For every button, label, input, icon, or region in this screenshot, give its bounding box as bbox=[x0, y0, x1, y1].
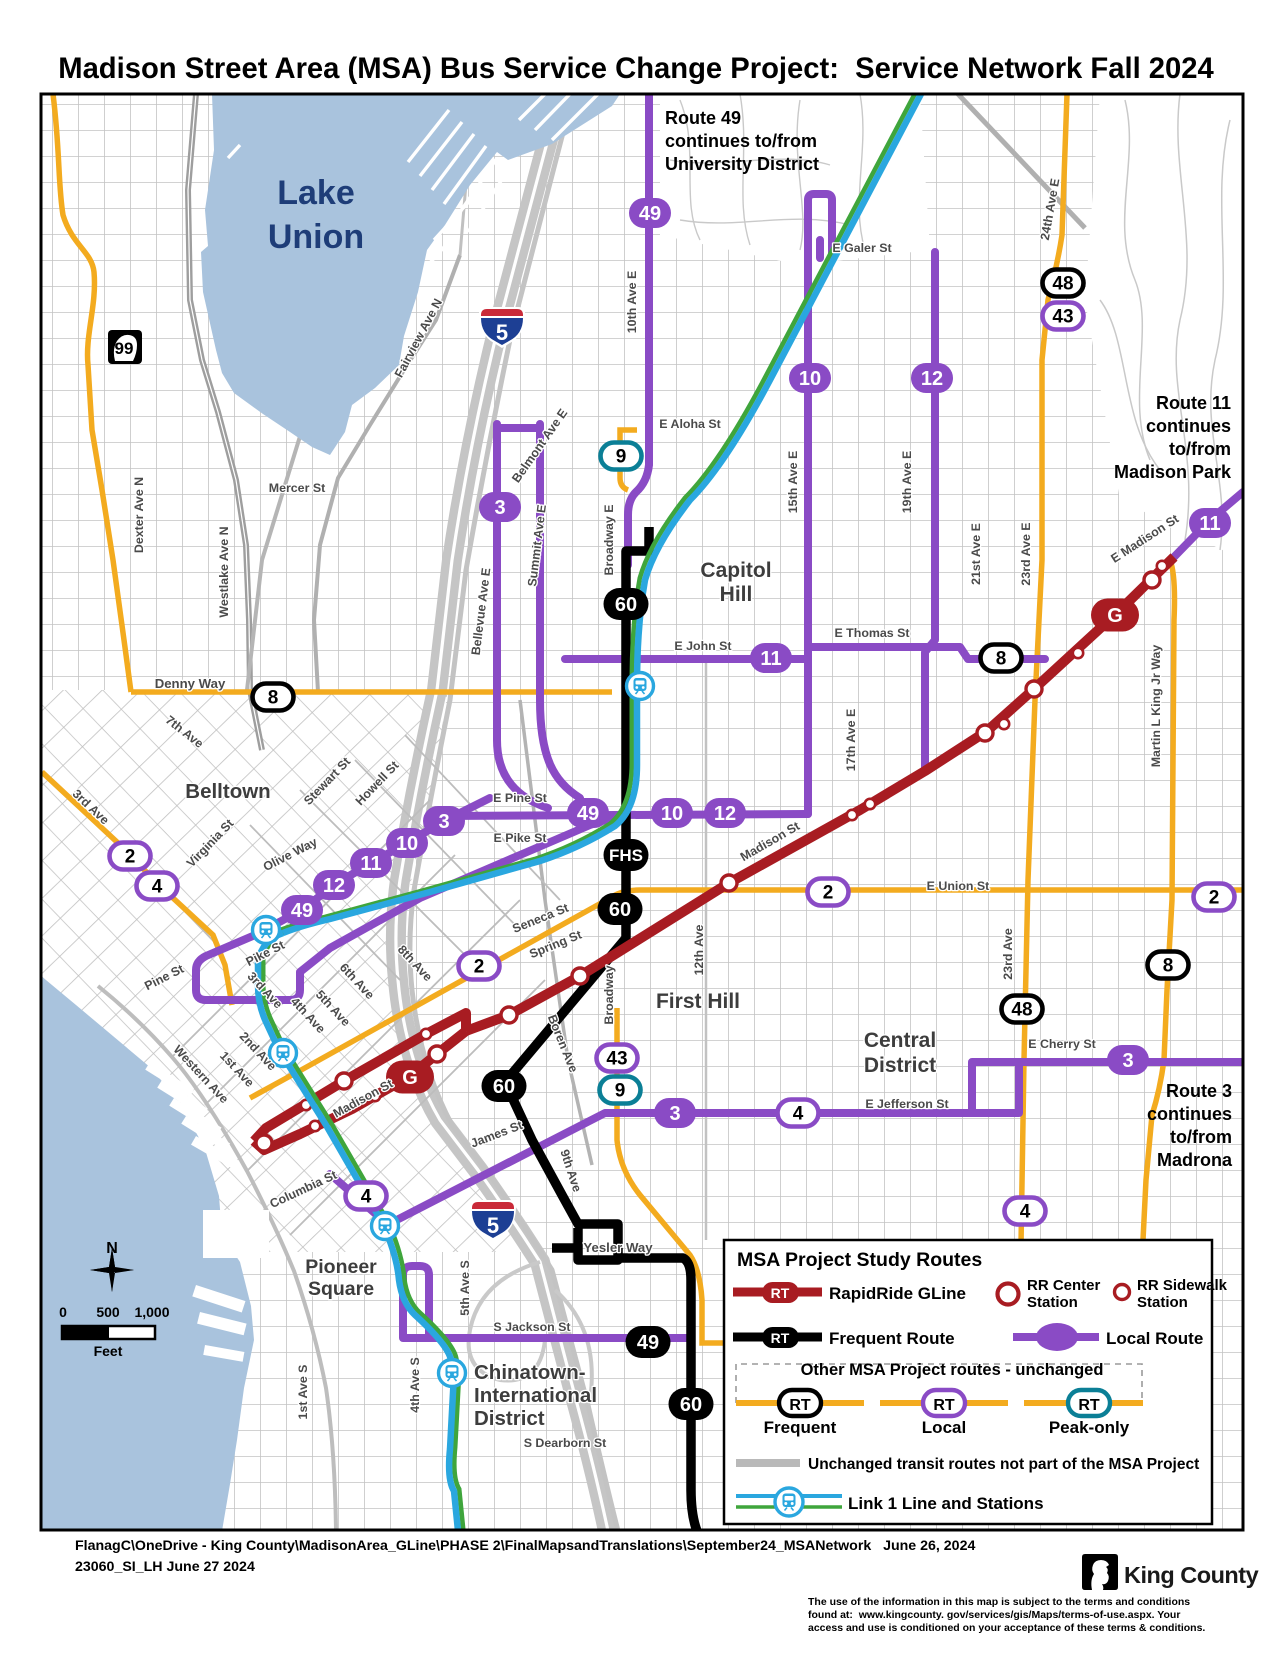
svg-text:G: G bbox=[402, 1067, 418, 1089]
svg-text:Frequent Route: Frequent Route bbox=[829, 1329, 955, 1348]
svg-text:19th Ave E: 19th Ave E bbox=[900, 451, 914, 513]
svg-text:to/from: to/from bbox=[1170, 1127, 1232, 1147]
svg-text:60: 60 bbox=[680, 1394, 702, 1416]
svg-text:0: 0 bbox=[59, 1304, 67, 1320]
svg-text:43: 43 bbox=[606, 1049, 627, 1070]
svg-text:continues to/from: continues to/from bbox=[665, 131, 817, 151]
svg-text:43: 43 bbox=[1052, 307, 1073, 328]
svg-text:2: 2 bbox=[474, 957, 485, 978]
svg-text:Frequent: Frequent bbox=[764, 1418, 837, 1437]
svg-text:MSA Project Study Routes: MSA Project Study Routes bbox=[737, 1249, 982, 1271]
svg-text:49: 49 bbox=[291, 900, 313, 922]
svg-text:500: 500 bbox=[96, 1304, 120, 1320]
svg-text:Station: Station bbox=[1137, 1294, 1188, 1311]
svg-text:11: 11 bbox=[360, 853, 381, 875]
svg-text:Madison Street Area (MSA) Bus: Madison Street Area (MSA) Bus Service Ch… bbox=[58, 53, 1214, 85]
svg-text:1,000: 1,000 bbox=[134, 1304, 169, 1320]
svg-text:to/from: to/from bbox=[1169, 439, 1231, 459]
svg-text:3: 3 bbox=[669, 1103, 680, 1125]
svg-text:Capitol: Capitol bbox=[700, 559, 771, 582]
svg-text:access and use is conditioned: access and use is conditioned on your ac… bbox=[808, 1622, 1205, 1634]
svg-text:1st Ave S: 1st Ave S bbox=[296, 1365, 310, 1420]
svg-text:King County: King County bbox=[1124, 1562, 1259, 1588]
svg-text:E Union St: E Union St bbox=[927, 879, 990, 893]
svg-text:Unchanged transit routes not p: Unchanged transit routes not part of the… bbox=[808, 1456, 1199, 1473]
svg-text:4: 4 bbox=[793, 1104, 804, 1125]
svg-text:5: 5 bbox=[487, 1213, 499, 1238]
svg-text:E Thomas St: E Thomas St bbox=[834, 626, 909, 640]
svg-text:RT: RT bbox=[933, 1397, 955, 1414]
svg-text:21st Ave E: 21st Ave E bbox=[969, 523, 983, 585]
svg-text:Mercer St: Mercer St bbox=[269, 481, 325, 495]
svg-text:23060_SI_LH June 27 2024: 23060_SI_LH June 27 2024 bbox=[75, 1559, 255, 1575]
svg-text:found at: www.kingcounty. gov: found at: www.kingcounty. gov/services/g… bbox=[808, 1609, 1180, 1621]
svg-text:8: 8 bbox=[268, 688, 279, 709]
svg-text:University District: University District bbox=[665, 154, 819, 174]
svg-text:G: G bbox=[1107, 605, 1123, 627]
svg-text:8: 8 bbox=[996, 649, 1007, 670]
svg-text:48: 48 bbox=[1011, 1000, 1032, 1021]
svg-text:23rd Ave E: 23rd Ave E bbox=[1019, 522, 1033, 585]
svg-text:Dexter Ave N: Dexter Ave N bbox=[132, 477, 146, 553]
svg-text:Peak-only: Peak-only bbox=[1049, 1418, 1130, 1437]
svg-text:17th Ave E: 17th Ave E bbox=[844, 709, 858, 771]
svg-text:12: 12 bbox=[921, 368, 943, 390]
svg-text:RT: RT bbox=[1078, 1397, 1100, 1414]
svg-text:60: 60 bbox=[609, 899, 631, 921]
svg-text:Route 3: Route 3 bbox=[1166, 1081, 1232, 1101]
svg-text:10: 10 bbox=[661, 803, 683, 825]
svg-text:continues: continues bbox=[1146, 416, 1231, 436]
svg-text:4th Ave S: 4th Ave S bbox=[408, 1357, 422, 1413]
svg-text:RapidRide GLine: RapidRide GLine bbox=[829, 1284, 966, 1303]
svg-text:5: 5 bbox=[496, 320, 508, 345]
svg-text:RT: RT bbox=[771, 1330, 790, 1346]
svg-text:Westlake Ave N: Westlake Ave N bbox=[217, 526, 231, 617]
svg-text:2: 2 bbox=[125, 847, 136, 868]
svg-text:Madrona: Madrona bbox=[1157, 1150, 1233, 1170]
svg-text:E John St: E John St bbox=[674, 639, 731, 653]
svg-text:10th Ave E: 10th Ave E bbox=[625, 271, 639, 333]
svg-text:E Pine St: E Pine St bbox=[493, 791, 547, 805]
svg-text:60: 60 bbox=[493, 1076, 515, 1098]
svg-text:continues: continues bbox=[1147, 1104, 1232, 1124]
svg-text:12: 12 bbox=[323, 875, 345, 897]
svg-text:2: 2 bbox=[1209, 888, 1220, 909]
svg-text:Madison Park: Madison Park bbox=[1114, 462, 1232, 482]
svg-text:Hill: Hill bbox=[720, 583, 753, 606]
svg-text:S Dearborn St: S Dearborn St bbox=[524, 1436, 607, 1450]
svg-text:10: 10 bbox=[396, 833, 418, 855]
svg-text:International: International bbox=[474, 1384, 597, 1407]
svg-text:4: 4 bbox=[361, 1187, 372, 1208]
svg-text:11: 11 bbox=[760, 648, 781, 670]
svg-text:Martin L King Jr Way: Martin L King Jr Way bbox=[1149, 645, 1163, 768]
svg-text:10: 10 bbox=[799, 368, 821, 390]
svg-text:48: 48 bbox=[1052, 274, 1073, 295]
svg-text:Station: Station bbox=[1027, 1294, 1078, 1311]
svg-text:RR Center: RR Center bbox=[1027, 1277, 1101, 1294]
svg-text:The use of the information in: The use of the information in this map i… bbox=[808, 1596, 1190, 1608]
svg-text:8: 8 bbox=[1163, 956, 1174, 977]
svg-text:E Galer St: E Galer St bbox=[832, 241, 891, 255]
svg-text:Chinatown-: Chinatown- bbox=[474, 1361, 586, 1384]
svg-text:15th Ave E: 15th Ave E bbox=[786, 451, 800, 513]
svg-text:RR Sidewalk: RR Sidewalk bbox=[1137, 1277, 1228, 1294]
svg-text:49: 49 bbox=[577, 803, 599, 825]
svg-text:Belltown: Belltown bbox=[185, 780, 270, 803]
svg-text:Pioneer: Pioneer bbox=[305, 1256, 377, 1278]
svg-text:Route 11: Route 11 bbox=[1156, 393, 1231, 413]
svg-text:99: 99 bbox=[115, 339, 134, 358]
svg-text:Route 49: Route 49 bbox=[665, 108, 741, 128]
svg-text:E Cherry St: E Cherry St bbox=[1028, 1037, 1095, 1051]
svg-text:Central: Central bbox=[864, 1029, 936, 1052]
svg-text:Union: Union bbox=[268, 218, 364, 256]
svg-text:District: District bbox=[864, 1054, 936, 1077]
svg-text:Local Route: Local Route bbox=[1106, 1329, 1203, 1348]
svg-text:Square: Square bbox=[308, 1278, 374, 1300]
svg-text:3: 3 bbox=[438, 811, 449, 833]
svg-text:Link 1 Line and Stations: Link 1 Line and Stations bbox=[848, 1494, 1044, 1513]
svg-text:FHS: FHS bbox=[609, 846, 643, 865]
svg-text:District: District bbox=[474, 1407, 545, 1430]
svg-text:23rd Ave: 23rd Ave bbox=[1001, 928, 1015, 980]
svg-text:S Jackson St: S Jackson St bbox=[493, 1320, 570, 1334]
svg-text:Other MSA Project routes - unc: Other MSA Project routes - unchanged bbox=[801, 1361, 1104, 1379]
svg-text:9: 9 bbox=[616, 447, 627, 468]
svg-text:First Hill: First Hill bbox=[656, 990, 740, 1013]
svg-text:E Jefferson St: E Jefferson St bbox=[865, 1097, 948, 1111]
svg-text:4: 4 bbox=[1020, 1202, 1031, 1223]
svg-text:E Aloha St: E Aloha St bbox=[659, 417, 721, 431]
svg-text:9: 9 bbox=[615, 1081, 626, 1102]
svg-text:Feet: Feet bbox=[94, 1343, 123, 1359]
svg-text:12th Ave: 12th Ave bbox=[692, 925, 706, 976]
svg-text:Yesler Way: Yesler Way bbox=[583, 1240, 653, 1255]
svg-text:3: 3 bbox=[494, 497, 505, 519]
svg-text:RT: RT bbox=[771, 1285, 790, 1301]
svg-text:RT: RT bbox=[789, 1397, 811, 1414]
svg-text:5th Ave S: 5th Ave S bbox=[458, 1260, 472, 1316]
svg-text:3: 3 bbox=[1122, 1050, 1133, 1072]
svg-text:E Pike St: E Pike St bbox=[493, 831, 546, 845]
svg-text:11: 11 bbox=[1199, 513, 1220, 535]
svg-text:12: 12 bbox=[714, 803, 736, 825]
svg-text:Lake: Lake bbox=[277, 174, 355, 212]
svg-text:60: 60 bbox=[615, 594, 637, 616]
svg-text:Broadway: Broadway bbox=[602, 965, 616, 1024]
svg-text:2: 2 bbox=[823, 883, 834, 904]
svg-text:49: 49 bbox=[637, 1332, 659, 1354]
svg-text:Denny Way: Denny Way bbox=[155, 676, 226, 691]
svg-text:Local: Local bbox=[922, 1418, 966, 1437]
svg-text:FlanagC\OneDrive - King County: FlanagC\OneDrive - King County\MadisonAr… bbox=[75, 1538, 975, 1554]
svg-text:49: 49 bbox=[639, 203, 661, 225]
svg-text:Broadway E: Broadway E bbox=[602, 505, 616, 576]
svg-text:4: 4 bbox=[152, 877, 163, 898]
